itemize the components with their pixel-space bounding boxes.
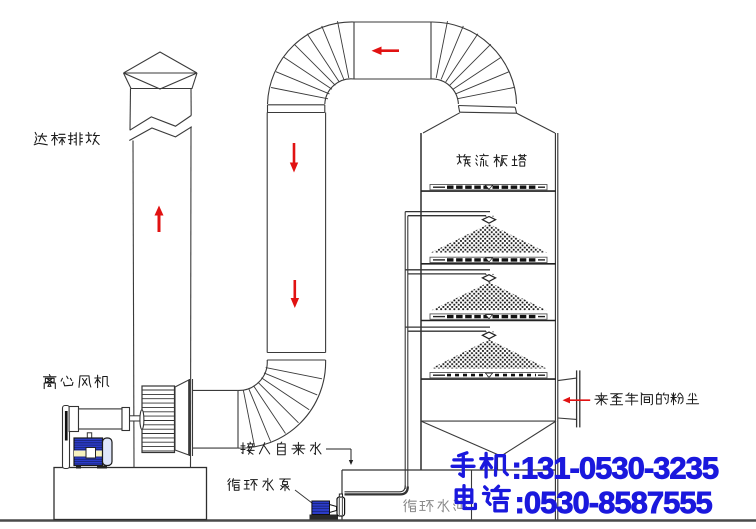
svg-text::0530-8587555: :0530-8587555 — [515, 485, 713, 520]
svg-text::131-0530-3235: :131-0530-3235 — [512, 451, 719, 486]
